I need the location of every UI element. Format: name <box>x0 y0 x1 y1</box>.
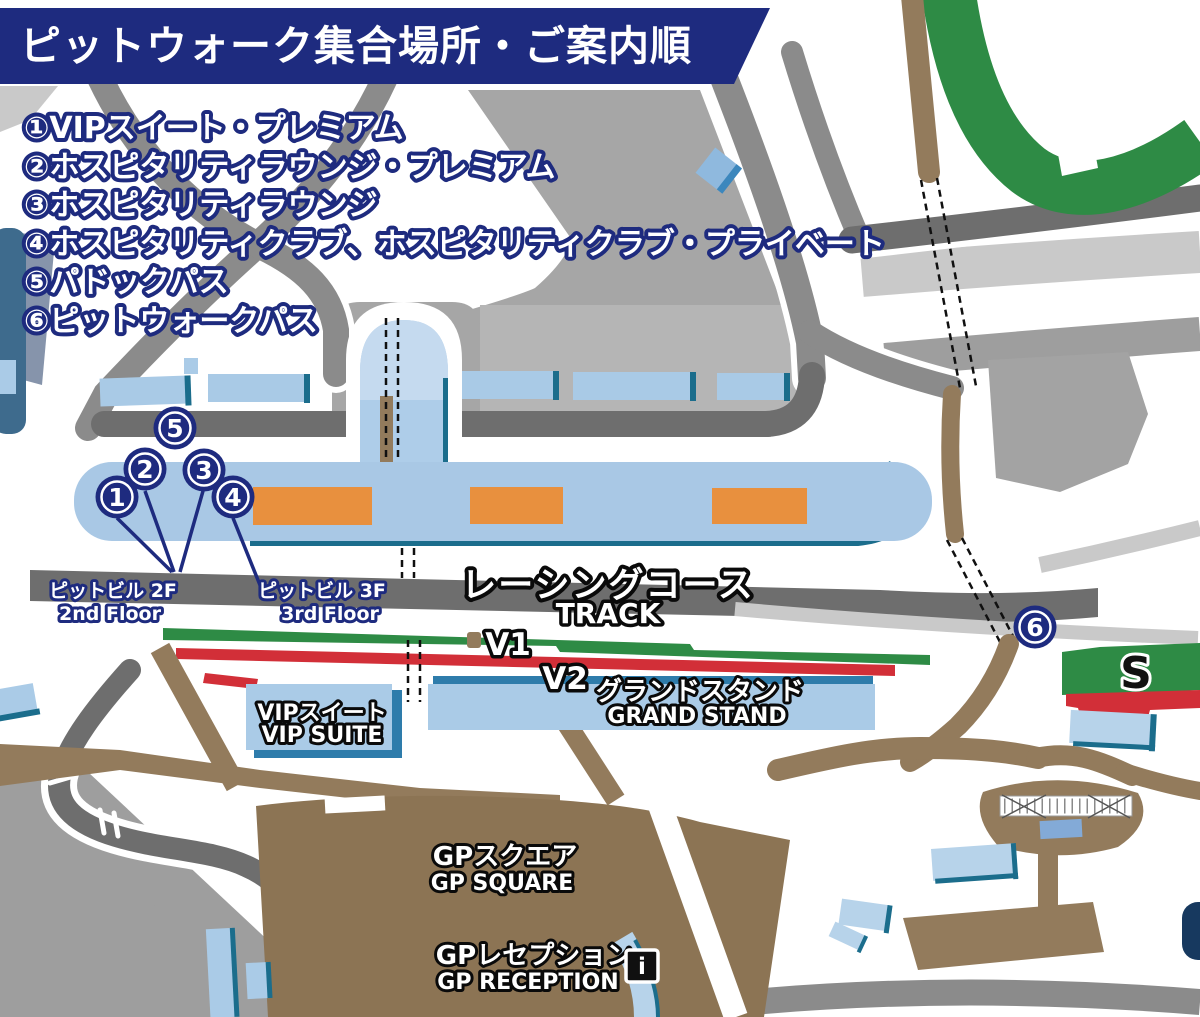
control-tower-top <box>360 320 448 400</box>
southeast-building <box>931 843 1018 885</box>
teal-edge <box>690 372 696 401</box>
track-brown-post <box>467 632 481 648</box>
legend-item-3: ③ホスピタリティラウンジ <box>24 188 378 223</box>
label-track-en: TRACK <box>556 597 662 630</box>
teal-edge <box>184 375 191 405</box>
marker-number: 5 <box>166 414 183 443</box>
label-grandstand-en: GRAND STAND <box>607 704 786 729</box>
label-vip-en: VIP SUITE <box>262 723 383 748</box>
pit-garage <box>208 374 310 403</box>
legend-item-6: ⑥ピットウォークパス <box>24 304 318 339</box>
pit-garage <box>573 372 696 401</box>
legend-item-1: ①VIPスイート・プレミアム <box>24 111 404 146</box>
pit-building-orange-block <box>253 487 372 525</box>
pit-walk-map-page: ピットウォーク集合場所・ご案内順 ①VIPスイート・プレミアム ②ホスピタリティ… <box>0 0 1200 1017</box>
legend-item-5: ⑤パドックパス <box>24 265 229 300</box>
label-gp-reception-en: GP RECEPTION <box>437 970 618 995</box>
label-s-stand: S <box>1120 648 1152 699</box>
pit-garage <box>100 375 192 408</box>
info-icon: i <box>626 950 658 982</box>
marker-number: 4 <box>224 483 241 512</box>
label-gp-reception-jp: GPレセプション <box>436 941 632 971</box>
teal-edge <box>443 378 448 462</box>
band-topright-light <box>862 252 1200 276</box>
pit-garage-small <box>184 358 198 374</box>
label-v1: V1 <box>485 627 531 663</box>
marker-6: 6 <box>1014 606 1057 649</box>
info-icon-letter: i <box>638 954 646 980</box>
marker-5: 5 <box>154 407 197 450</box>
pit-garage-building <box>717 373 789 400</box>
label-gp-square-jp: GPスクエア <box>433 842 577 872</box>
label-pit-3f-en: 3rd Floor <box>281 603 379 625</box>
header-banner: ピットウォーク集合場所・ご案内順 <box>0 8 770 84</box>
pit-building-orange-block <box>470 487 563 524</box>
legend-item-4: ④ホスピタリティクラブ、ホスピタリティクラブ・プライベート <box>24 227 885 262</box>
bridge-blue-building-rect <box>1040 819 1083 839</box>
pit-garage-building <box>573 372 695 400</box>
pit-garage <box>717 373 790 401</box>
slate-blue-bar <box>0 228 26 434</box>
plaza-white-booth <box>325 795 386 813</box>
footbridge <box>1000 795 1132 818</box>
area-paddock-light <box>480 305 800 425</box>
label-pit-3f-jp: ピットビル 3F <box>258 580 386 602</box>
circuit-map: ピットウォーク集合場所・ご案内順 ①VIPスイート・プレミアム ②ホスピタリティ… <box>0 0 1200 1017</box>
pit-garage <box>457 371 559 400</box>
brown-path-mid <box>950 394 955 534</box>
label-v2: V2 <box>542 661 588 697</box>
label-gp-square-en: GP SQUARE <box>431 871 574 896</box>
marker-number: 1 <box>108 483 125 512</box>
left-small-building <box>0 360 16 394</box>
pit-building-orange-block <box>712 488 807 524</box>
navy-blob-right-edge <box>1182 902 1200 960</box>
teal-edge <box>553 371 559 400</box>
marker-number: 2 <box>136 455 153 484</box>
legend-item-2: ②ホスピタリティラウンジ・プレミアム <box>24 150 556 185</box>
pit-garage-building <box>208 374 308 402</box>
page-title: ピットウォーク集合場所・ご案内順 <box>20 22 692 70</box>
plaza-white-booth-rect <box>325 795 386 813</box>
pit-garage-building <box>457 371 558 399</box>
teal-edge <box>304 374 310 403</box>
marker-number: 6 <box>1026 613 1043 642</box>
label-pit-2f-jp: ピットビル 2F <box>49 580 177 602</box>
marker-number: 3 <box>195 456 212 485</box>
bridge-blue-building <box>1040 819 1083 839</box>
stand-s-building <box>1069 710 1157 751</box>
marker-1: 1 <box>96 476 139 519</box>
label-grandstand-jp: グランドスタンド <box>596 677 804 707</box>
pit-garage-building <box>100 376 189 407</box>
teal-edge <box>784 373 790 401</box>
marker-4: 4 <box>212 476 255 519</box>
label-pit-2f-en: 2nd Floor <box>59 603 162 625</box>
